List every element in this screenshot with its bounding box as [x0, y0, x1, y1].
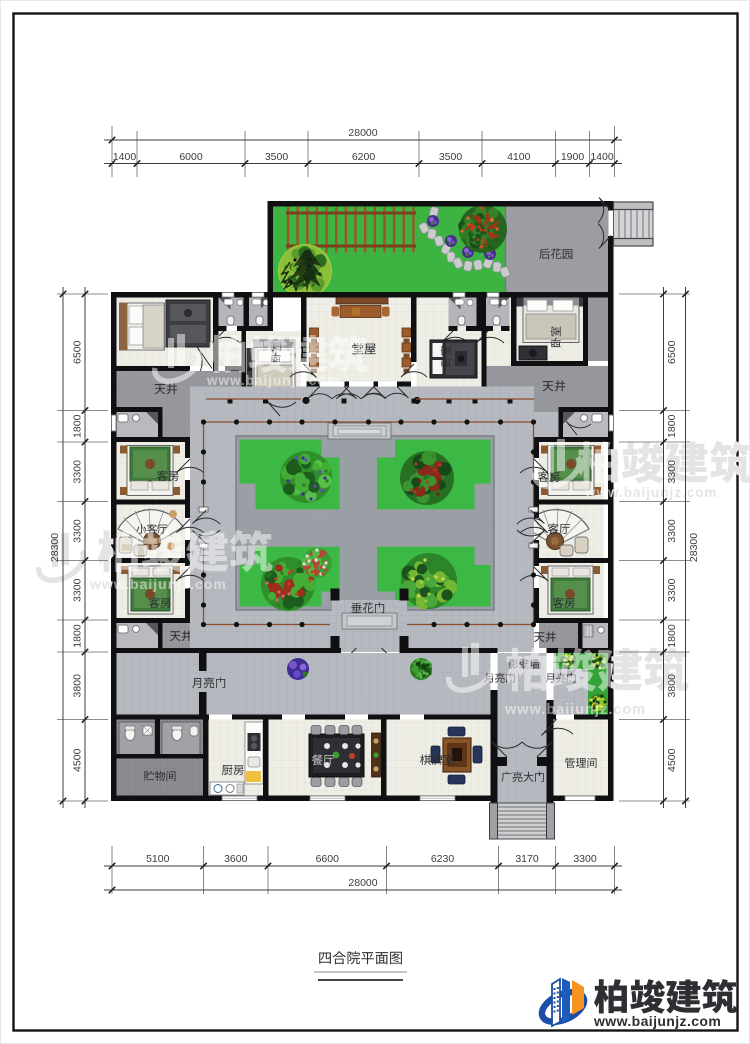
- svg-text:3500: 3500: [439, 151, 463, 163]
- svg-text:5100: 5100: [146, 853, 170, 865]
- svg-text:4100: 4100: [507, 151, 531, 163]
- svg-text:3300: 3300: [666, 578, 678, 602]
- svg-text:3300: 3300: [72, 460, 84, 484]
- svg-text:6200: 6200: [352, 151, 376, 163]
- svg-text:28300: 28300: [688, 533, 700, 562]
- svg-text:1400: 1400: [590, 151, 614, 163]
- svg-text:4500: 4500: [666, 748, 678, 772]
- svg-text:28000: 28000: [348, 127, 377, 139]
- svg-text:1900: 1900: [561, 151, 585, 163]
- svg-text:1800: 1800: [666, 414, 678, 438]
- svg-text:6500: 6500: [72, 340, 84, 364]
- svg-text:1800: 1800: [72, 624, 84, 648]
- svg-text:6230: 6230: [431, 853, 455, 865]
- svg-text:1800: 1800: [72, 414, 84, 438]
- svg-text:28000: 28000: [348, 877, 377, 889]
- svg-text:3800: 3800: [666, 674, 678, 698]
- svg-text:3300: 3300: [72, 578, 84, 602]
- svg-text:1400: 1400: [113, 151, 137, 163]
- svg-text:4500: 4500: [72, 748, 84, 772]
- svg-text:6600: 6600: [316, 853, 340, 865]
- svg-text:www.baijunjz.com: www.baijunjz.com: [593, 1013, 721, 1029]
- svg-text:1800: 1800: [666, 624, 678, 648]
- svg-text:3170: 3170: [515, 853, 539, 865]
- svg-text:3600: 3600: [224, 853, 248, 865]
- svg-text:3300: 3300: [666, 519, 678, 543]
- svg-text:3300: 3300: [72, 519, 84, 543]
- svg-text:3800: 3800: [72, 674, 84, 698]
- svg-text:3300: 3300: [666, 460, 678, 484]
- svg-text:6500: 6500: [666, 340, 678, 364]
- svg-text:6000: 6000: [179, 151, 203, 163]
- svg-text:www.baijunjz.com: www.baijunjz.com: [206, 373, 340, 388]
- svg-text:28300: 28300: [49, 533, 61, 562]
- svg-text:3300: 3300: [573, 853, 597, 865]
- svg-text:3500: 3500: [265, 151, 289, 163]
